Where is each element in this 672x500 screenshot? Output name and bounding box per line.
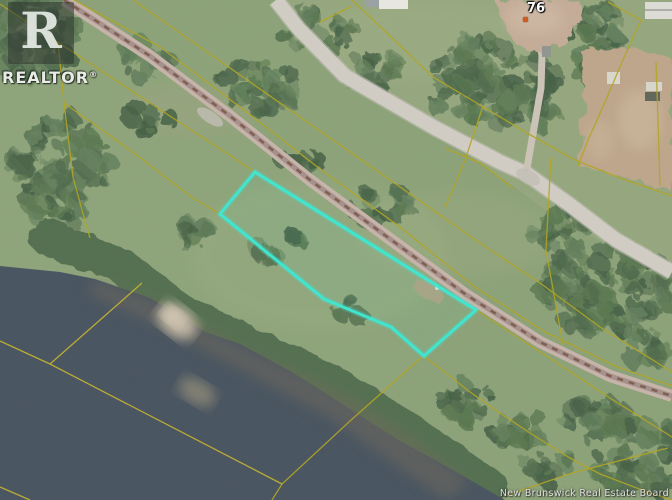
aerial-listing-photo: R REALTOR® 76 New Brunswick Real Estate …: [0, 0, 672, 500]
photo-grain: [0, 0, 672, 500]
aerial-map-svg: [0, 0, 672, 500]
